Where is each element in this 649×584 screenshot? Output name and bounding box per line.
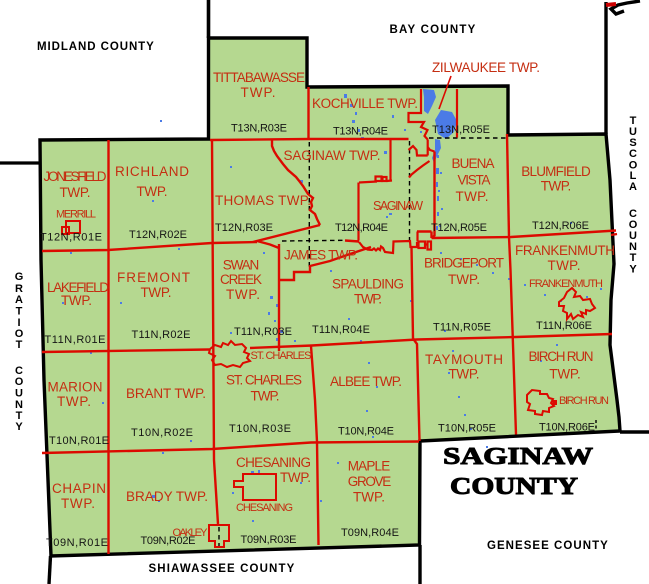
svg-text:T10N,R02E: T10N,R02E xyxy=(131,427,193,439)
svg-text:FRANKENMUTH: FRANKENMUTH xyxy=(529,278,603,290)
svg-text:T11N,R06E: T11N,R06E xyxy=(536,320,592,332)
svg-text:T12N,R04E: T12N,R04E xyxy=(335,222,388,234)
svg-text:Y: Y xyxy=(629,264,637,276)
svg-text:TWP.: TWP. xyxy=(549,367,581,382)
svg-text:TWP.: TWP. xyxy=(226,287,260,302)
svg-text:TWP.: TWP. xyxy=(61,496,95,511)
svg-text:T11N,R01E: T11N,R01E xyxy=(45,334,106,346)
svg-text:MIDLAND COUNTY: MIDLAND COUNTY xyxy=(37,41,155,53)
svg-text:MERRILL: MERRILL xyxy=(56,209,96,221)
svg-text:COUNTY: COUNTY xyxy=(450,473,578,500)
svg-text:T: T xyxy=(16,306,23,318)
svg-text:BAY COUNTY: BAY COUNTY xyxy=(390,24,477,36)
svg-text:MARION: MARION xyxy=(48,380,103,395)
svg-text:T13N,R04E: T13N,R04E xyxy=(333,126,388,138)
svg-text:A: A xyxy=(15,294,23,306)
svg-text:TWP.: TWP. xyxy=(541,179,572,194)
svg-text:T12N,R05E: T12N,R05E xyxy=(431,222,487,234)
svg-text:ALBEE TWP.: ALBEE TWP. xyxy=(330,374,402,389)
svg-text:TITTABAWASSE: TITTABAWASSE xyxy=(213,70,305,85)
svg-text:KOCHVILLE TWP.: KOCHVILLE TWP. xyxy=(312,96,418,111)
svg-text:T10N,R03E: T10N,R03E xyxy=(229,423,291,435)
svg-text:ST. CHARLES: ST. CHARLES xyxy=(251,350,312,362)
svg-text:TWP.: TWP. xyxy=(548,258,581,273)
svg-text:TWP.: TWP. xyxy=(61,293,92,308)
svg-text:TWP.: TWP. xyxy=(448,272,480,287)
svg-text:G: G xyxy=(15,271,24,283)
svg-text:T11N,R05E: T11N,R05E xyxy=(433,322,491,334)
svg-text:SAGINAW: SAGINAW xyxy=(443,443,594,470)
svg-text:BUENA: BUENA xyxy=(452,156,495,171)
svg-text:T10N,R01E: T10N,R01E xyxy=(49,435,109,447)
svg-text:A: A xyxy=(629,181,637,193)
svg-text:T: T xyxy=(16,339,23,351)
svg-text:O: O xyxy=(15,376,24,388)
svg-text:TWP.: TWP. xyxy=(280,470,311,485)
svg-text:BRADY TWP.: BRADY TWP. xyxy=(126,489,208,504)
svg-text:SAGINAW TWP.: SAGINAW TWP. xyxy=(284,148,381,163)
svg-text:T09N,R04E: T09N,R04E xyxy=(341,527,399,539)
svg-text:FREMONT: FREMONT xyxy=(117,270,190,285)
svg-text:TWP.: TWP. xyxy=(353,490,385,505)
svg-text:SAGINAW: SAGINAW xyxy=(373,199,423,213)
svg-text:BRANT TWP.: BRANT TWP. xyxy=(126,386,206,401)
svg-text:TWP.: TWP. xyxy=(60,185,91,200)
svg-text:TWP.: TWP. xyxy=(241,85,276,100)
svg-text:U: U xyxy=(15,388,23,400)
svg-text:VISTA: VISTA xyxy=(458,173,491,188)
svg-text:TWP.: TWP. xyxy=(141,285,172,300)
svg-text:T10N,R06E: T10N,R06E xyxy=(539,422,595,434)
svg-text:T13N,R03E: T13N,R03E xyxy=(231,123,287,135)
svg-text:BIRCH RUN: BIRCH RUN xyxy=(559,395,609,407)
svg-text:T12N,R01E: T12N,R01E xyxy=(40,232,102,244)
svg-text:JAMES TWP.: JAMES TWP. xyxy=(284,248,358,263)
svg-text:T11N,R04E: T11N,R04E xyxy=(312,324,370,336)
svg-text:C: C xyxy=(629,148,637,160)
svg-text:CHESANING: CHESANING xyxy=(236,502,293,514)
svg-text:GROVE: GROVE xyxy=(348,474,392,489)
svg-text:CREEK: CREEK xyxy=(220,272,262,287)
svg-text:ZILWAUKEE TWP.: ZILWAUKEE TWP. xyxy=(432,60,540,75)
svg-text:T10N,R05E: T10N,R05E xyxy=(438,423,496,435)
svg-text:TWP.: TWP. xyxy=(449,367,480,382)
svg-text:GENESEE COUNTY: GENESEE COUNTY xyxy=(487,540,609,552)
svg-text:THOMAS TWP.: THOMAS TWP. xyxy=(215,193,311,208)
svg-text:T10N,R04E: T10N,R04E xyxy=(338,426,394,438)
svg-text:T11N,R02E: T11N,R02E xyxy=(132,329,191,341)
svg-text:FRANKENMUTH: FRANKENMUTH xyxy=(515,243,615,258)
svg-text:T12N,R03E: T12N,R03E xyxy=(215,222,273,234)
svg-text:SPAULDING: SPAULDING xyxy=(332,277,404,292)
svg-text:SHIAWASSEE COUNTY: SHIAWASSEE COUNTY xyxy=(149,563,296,575)
svg-text:BLUMFIELD: BLUMFIELD xyxy=(521,164,591,179)
svg-text:BIRCH RUN: BIRCH RUN xyxy=(529,349,594,364)
svg-text:T12N,R02E: T12N,R02E xyxy=(129,229,187,241)
svg-text:TWP.: TWP. xyxy=(251,389,280,404)
svg-text:T09N,R02E: T09N,R02E xyxy=(141,535,196,547)
svg-text:TAYMOUTH: TAYMOUTH xyxy=(425,352,503,367)
svg-text:RICHLAND: RICHLAND xyxy=(115,164,189,179)
svg-text:CHAPIN: CHAPIN xyxy=(52,481,106,496)
svg-text:JONESFIELD: JONESFIELD xyxy=(44,169,107,184)
svg-text:ST. CHARLES: ST. CHARLES xyxy=(226,373,302,388)
svg-text:T09N,R03E: T09N,R03E xyxy=(241,534,297,546)
svg-text:TWP.: TWP. xyxy=(57,394,91,409)
svg-text:T13N,R05E: T13N,R05E xyxy=(432,124,490,136)
svg-text:TWP.: TWP. xyxy=(456,189,489,204)
svg-text:T: T xyxy=(630,252,637,264)
svg-text:T12N,R06E: T12N,R06E xyxy=(532,220,589,232)
svg-text:T09N,R01E: T09N,R01E xyxy=(46,537,108,549)
svg-text:MAPLE: MAPLE xyxy=(348,459,391,474)
svg-text:CHESANING: CHESANING xyxy=(236,455,311,470)
svg-text:T11N,R03E: T11N,R03E xyxy=(234,326,292,338)
svg-text:TWP.: TWP. xyxy=(354,292,382,307)
svg-text:Y: Y xyxy=(15,421,23,433)
svg-text:BRIDGEPORT: BRIDGEPORT xyxy=(424,256,504,271)
svg-text:TWP.: TWP. xyxy=(137,184,168,199)
svg-text:SWAN: SWAN xyxy=(223,258,260,273)
